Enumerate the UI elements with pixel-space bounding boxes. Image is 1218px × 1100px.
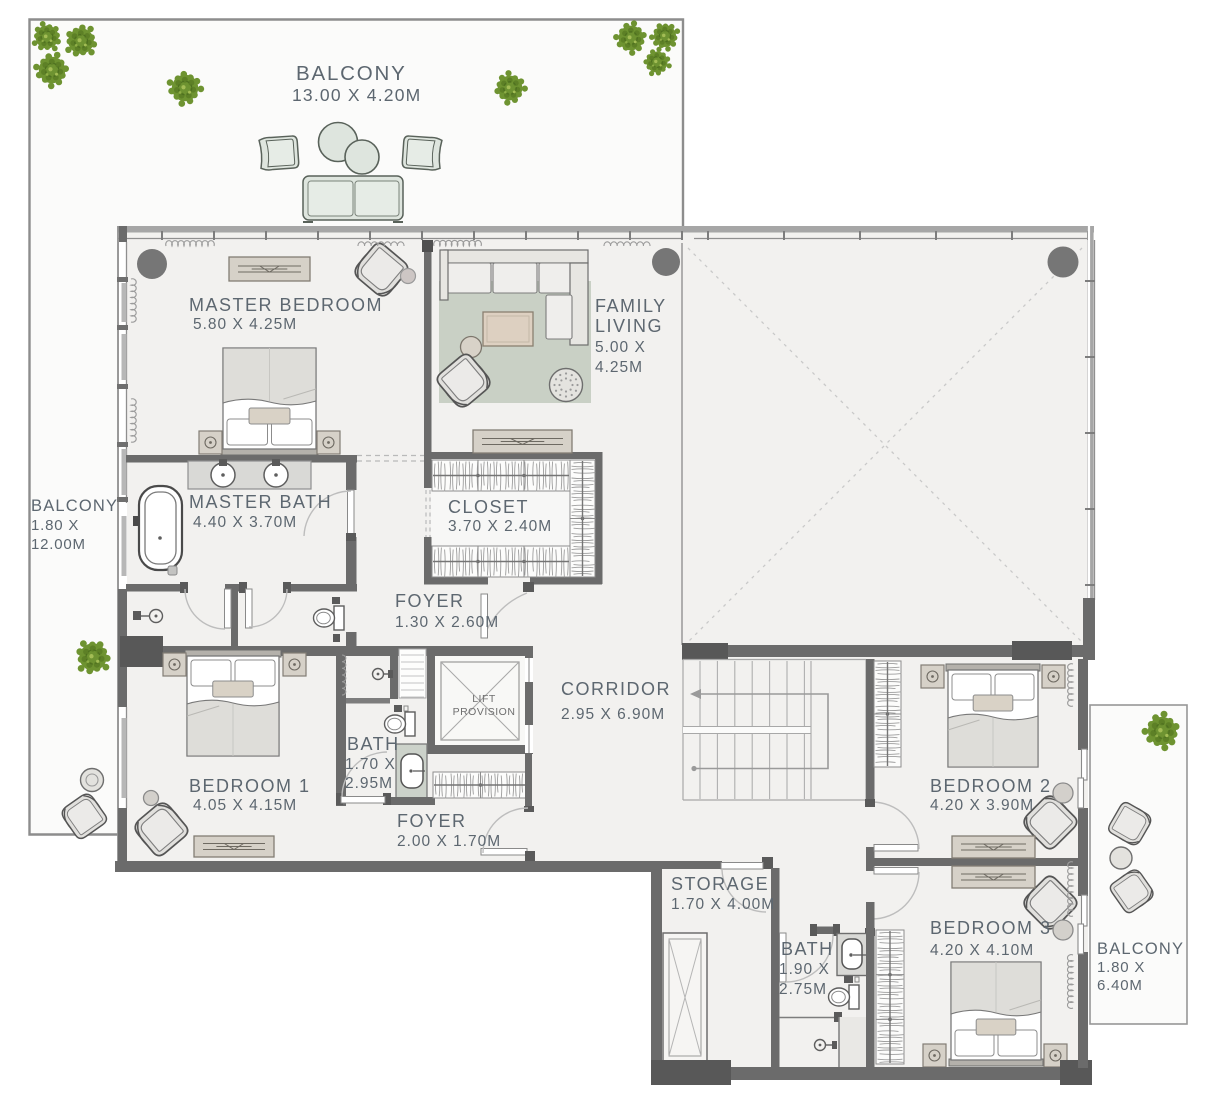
svg-text:LIFT: LIFT [472, 693, 496, 705]
svg-text:1.80 X: 1.80 X [31, 517, 79, 534]
svg-text:BALCONY: BALCONY [31, 497, 118, 515]
svg-text:BALCONY: BALCONY [1097, 940, 1184, 958]
svg-text:2.95 X 6.90M: 2.95 X 6.90M [561, 706, 665, 723]
svg-text:5.00 X: 5.00 X [595, 339, 646, 356]
svg-text:FOYER: FOYER [397, 811, 467, 831]
svg-text:1.30 X 2.60M: 1.30 X 2.60M [395, 614, 499, 631]
svg-text:4.20 X 4.10M: 4.20 X 4.10M [930, 942, 1034, 959]
svg-text:3.70 X 2.40M: 3.70 X 2.40M [448, 518, 552, 535]
svg-text:13.00 X 4.20M: 13.00 X 4.20M [292, 85, 421, 105]
svg-text:BALCONY: BALCONY [296, 62, 407, 85]
svg-text:BEDROOM 3: BEDROOM 3 [930, 918, 1052, 938]
svg-text:BEDROOM 2: BEDROOM 2 [930, 776, 1052, 796]
svg-text:1.80 X: 1.80 X [1097, 959, 1145, 976]
svg-text:1.70 X 4.00M: 1.70 X 4.00M [671, 896, 775, 913]
svg-text:LIVING: LIVING [595, 316, 663, 336]
svg-text:1.70 X: 1.70 X [345, 756, 396, 773]
svg-text:4.25M: 4.25M [595, 359, 643, 376]
svg-text:PROVISION: PROVISION [453, 706, 516, 718]
svg-text:MASTER BATH: MASTER BATH [189, 492, 332, 512]
svg-text:12.00M: 12.00M [31, 536, 86, 553]
svg-text:STORAGE: STORAGE [671, 874, 769, 894]
svg-text:FOYER: FOYER [395, 591, 465, 611]
svg-text:4.40 X 3.70M: 4.40 X 3.70M [193, 514, 297, 531]
svg-text:2.95M: 2.95M [345, 775, 393, 792]
svg-text:5.80 X 4.25M: 5.80 X 4.25M [193, 316, 297, 333]
svg-text:CLOSET: CLOSET [448, 497, 529, 517]
svg-text:4.05 X 4.15M: 4.05 X 4.15M [193, 797, 297, 814]
svg-text:MASTER BEDROOM: MASTER BEDROOM [189, 295, 383, 315]
svg-text:2.75M: 2.75M [779, 981, 827, 998]
svg-text:BATH: BATH [781, 939, 834, 959]
svg-text:4.20 X 3.90M: 4.20 X 3.90M [930, 797, 1034, 814]
svg-text:6.40M: 6.40M [1097, 977, 1143, 994]
svg-text:1.90 X: 1.90 X [779, 961, 830, 978]
svg-text:BEDROOM 1: BEDROOM 1 [189, 776, 311, 796]
svg-text:BATH: BATH [347, 734, 400, 754]
svg-text:2.00 X 1.70M: 2.00 X 1.70M [397, 833, 501, 850]
svg-text:FAMILY: FAMILY [595, 296, 667, 316]
svg-text:CORRIDOR: CORRIDOR [561, 679, 671, 699]
